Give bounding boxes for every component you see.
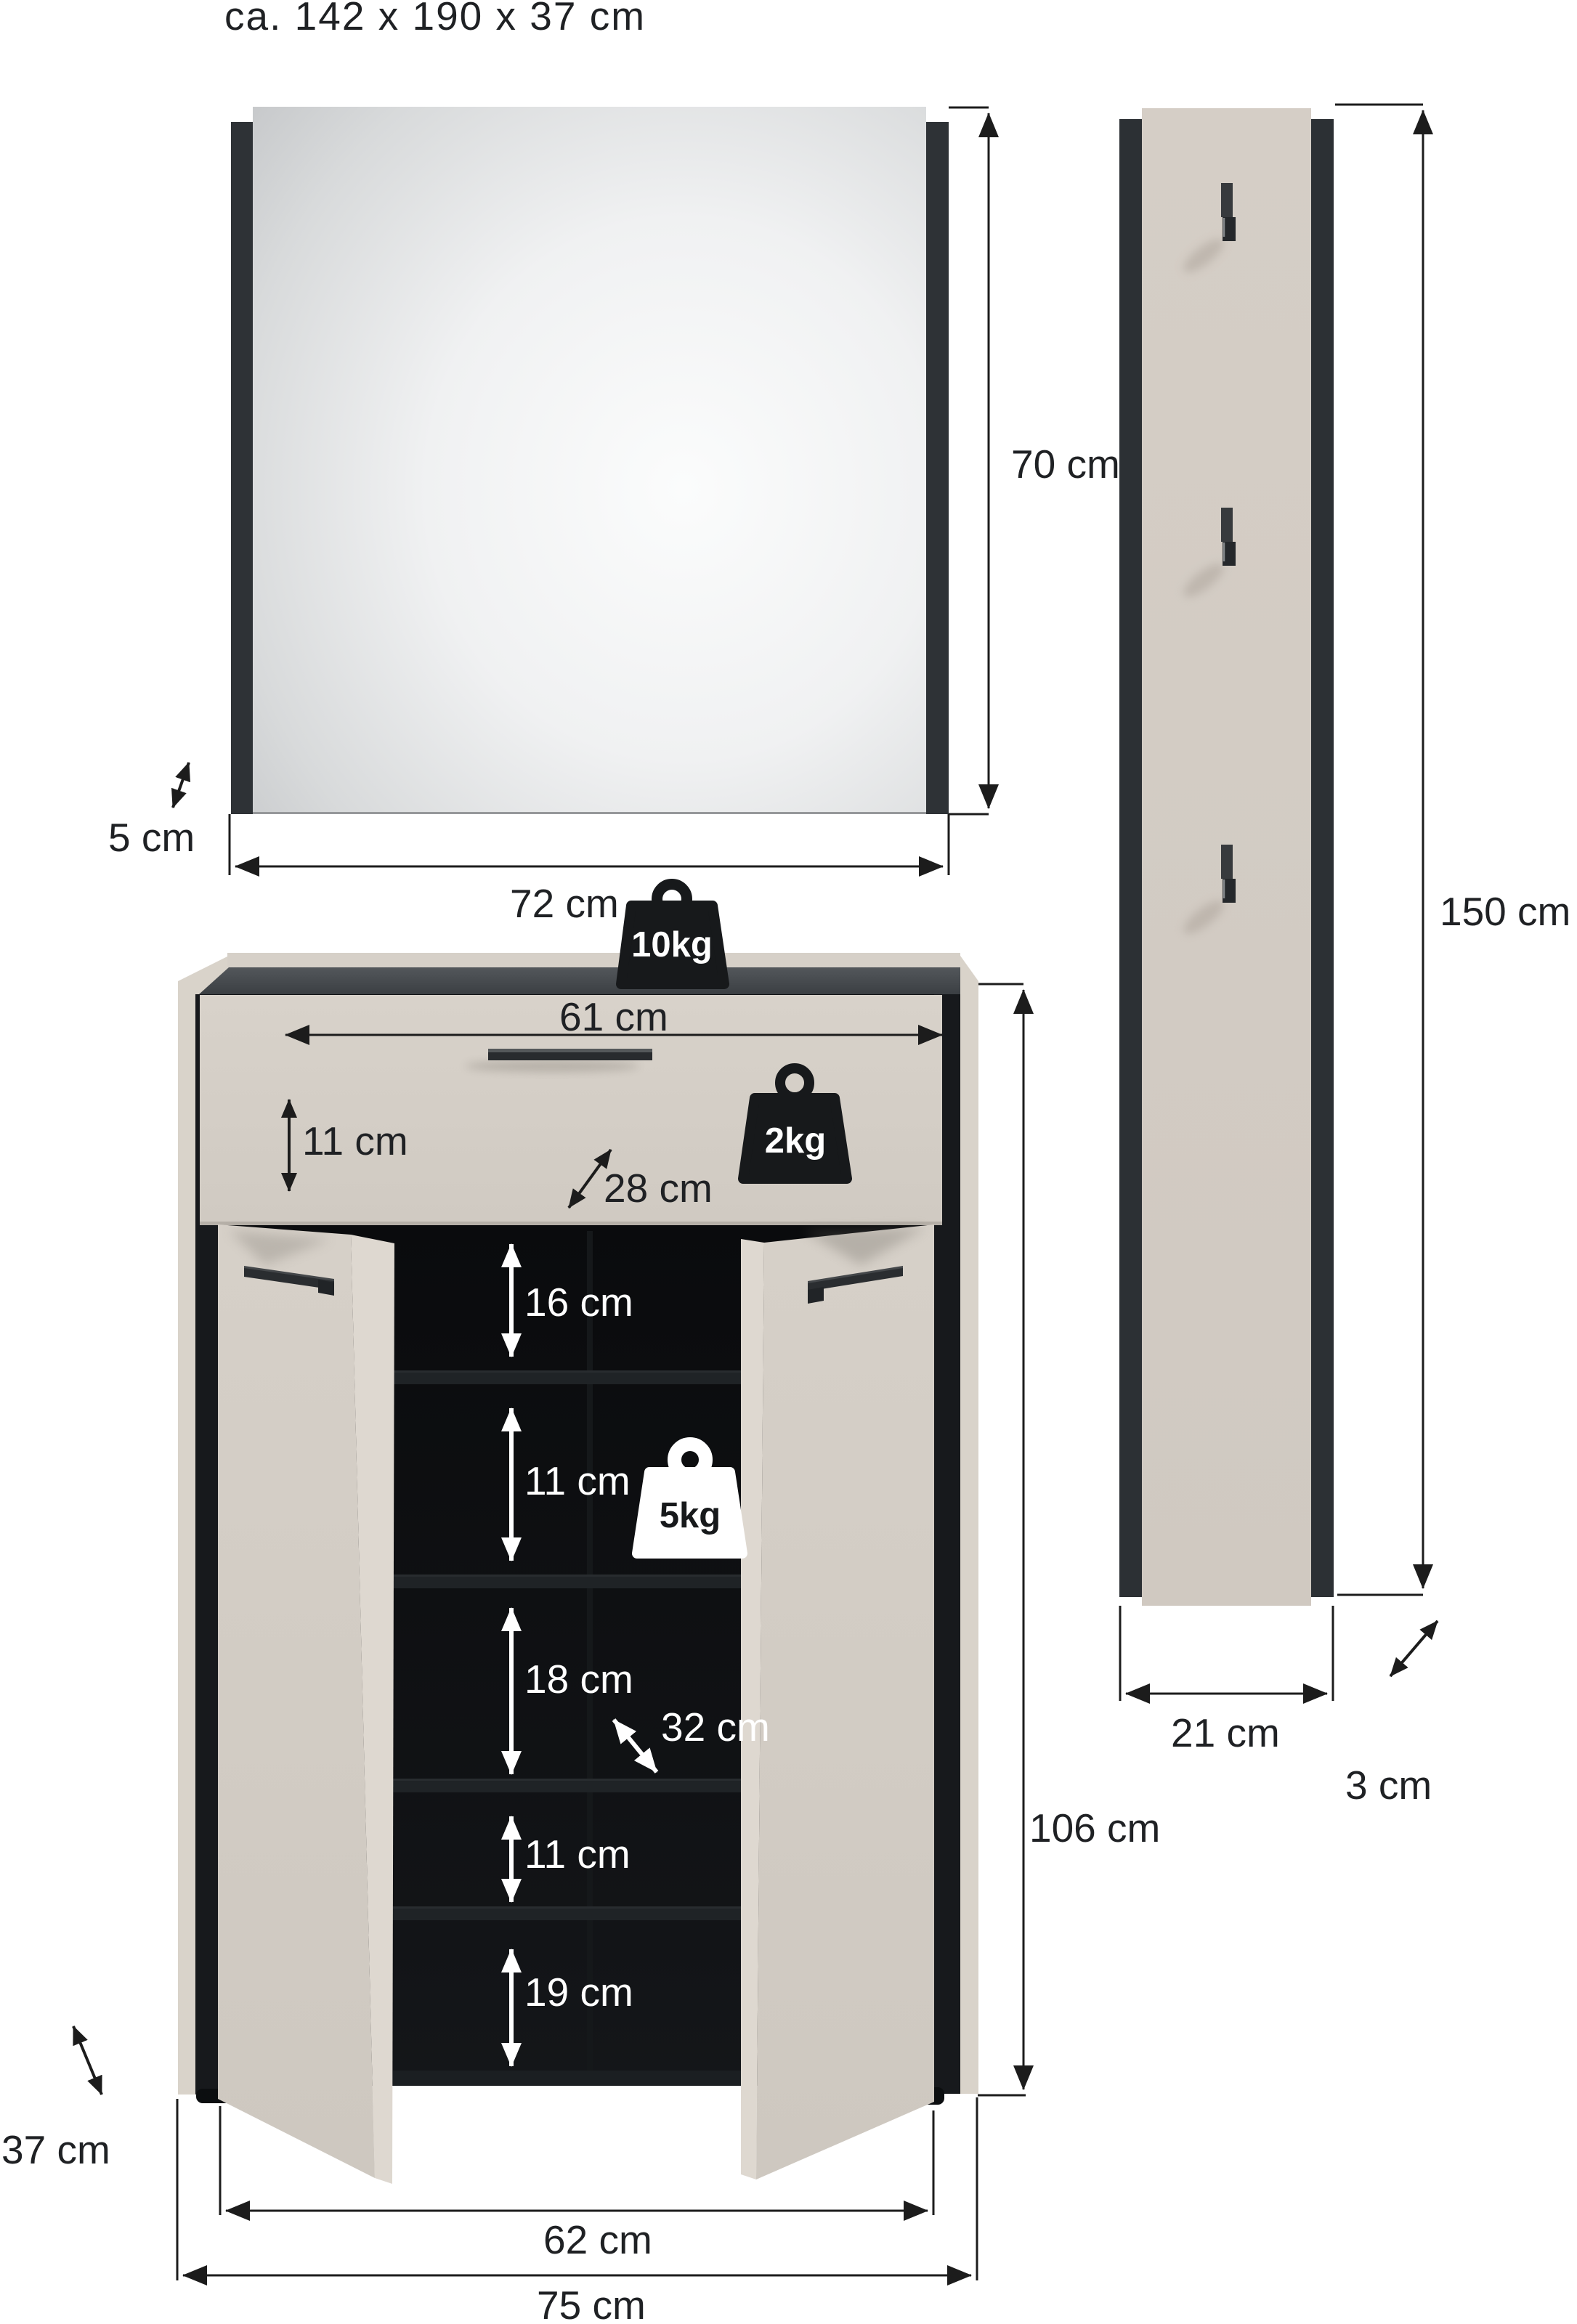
svg-text:19 cm: 19 cm bbox=[524, 1970, 633, 2015]
svg-text:11 cm: 11 cm bbox=[524, 1832, 631, 1877]
svg-text:ca. 142 x 190 x 37 cm: ca. 142 x 190 x 37 cm bbox=[224, 0, 646, 38]
svg-text:21 cm: 21 cm bbox=[1171, 1710, 1280, 1755]
svg-text:106 cm: 106 cm bbox=[1029, 1805, 1160, 1850]
svg-text:3 cm: 3 cm bbox=[1345, 1763, 1432, 1808]
svg-text:150 cm: 150 cm bbox=[1440, 889, 1570, 934]
svg-text:28 cm: 28 cm bbox=[604, 1166, 713, 1211]
svg-text:37 cm: 37 cm bbox=[1, 2127, 110, 2172]
svg-text:10kg: 10kg bbox=[631, 925, 713, 964]
svg-text:32 cm: 32 cm bbox=[661, 1705, 770, 1750]
svg-text:72 cm: 72 cm bbox=[510, 881, 619, 926]
svg-text:70 cm: 70 cm bbox=[1011, 442, 1120, 487]
svg-text:61 cm: 61 cm bbox=[559, 994, 668, 1039]
svg-text:5kg: 5kg bbox=[660, 1496, 721, 1535]
svg-text:18 cm: 18 cm bbox=[524, 1657, 633, 1702]
svg-text:2kg: 2kg bbox=[765, 1121, 826, 1161]
svg-text:11 cm: 11 cm bbox=[524, 1458, 631, 1503]
svg-text:16 cm: 16 cm bbox=[524, 1280, 633, 1325]
svg-text:75 cm: 75 cm bbox=[537, 2283, 646, 2324]
svg-text:5 cm: 5 cm bbox=[108, 815, 195, 860]
svg-text:11 cm: 11 cm bbox=[302, 1118, 408, 1163]
svg-text:62 cm: 62 cm bbox=[543, 2217, 652, 2262]
